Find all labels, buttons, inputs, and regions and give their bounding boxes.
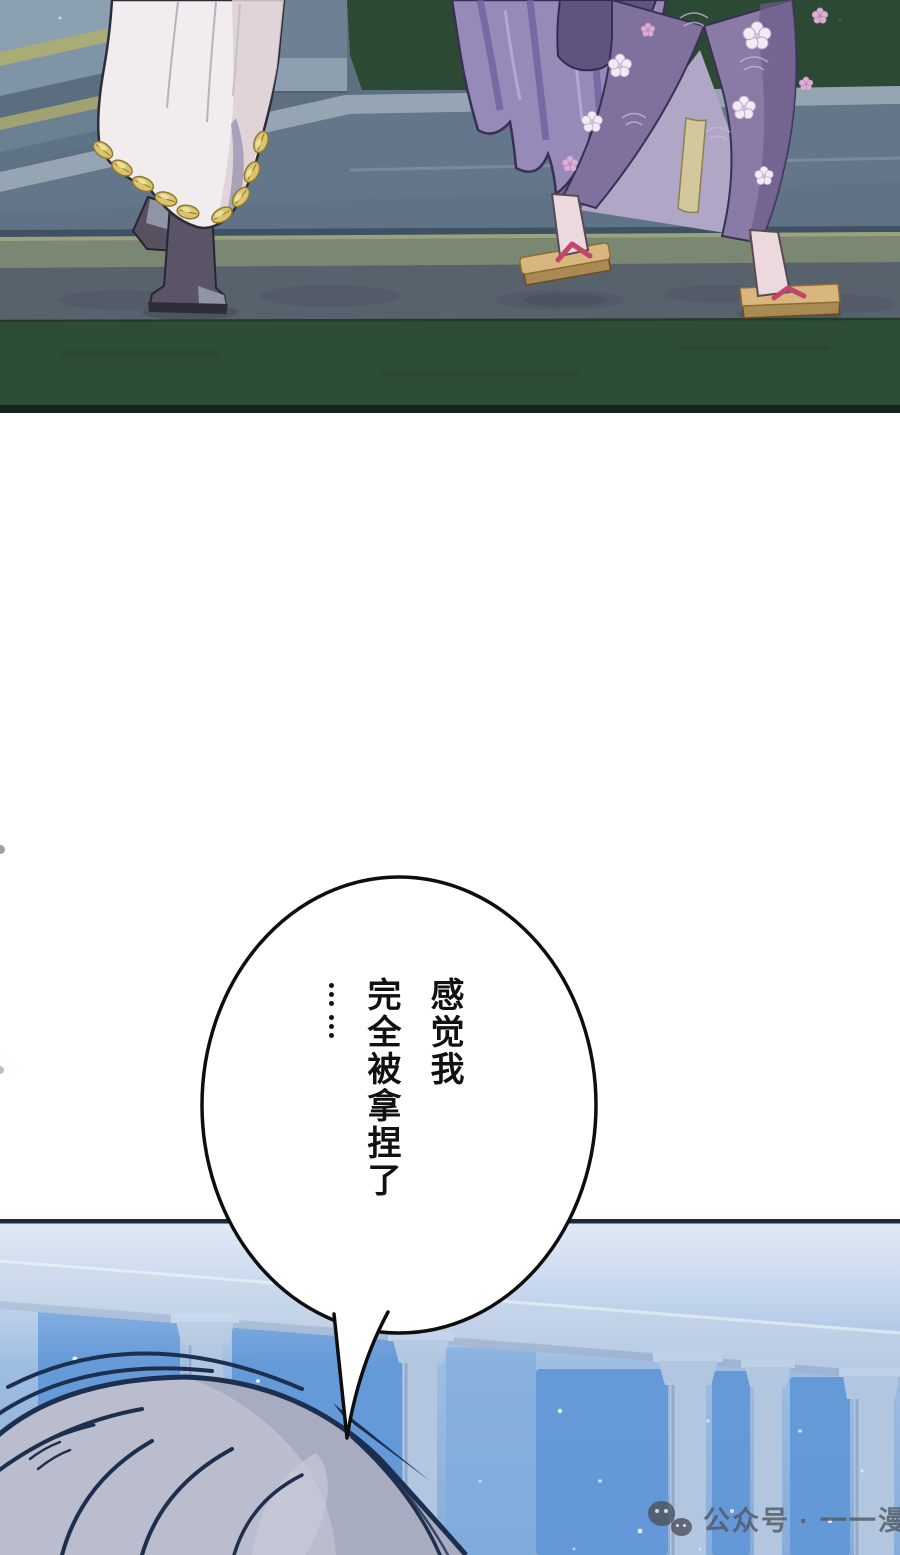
bubble-text-column-2: 完全被拿捏了 [364,977,398,1199]
wechat-icon [648,1501,694,1536]
top-panel-border [0,405,900,413]
manhua-page: 感觉我 完全被拿捏了 …… 公众号 · 一一漫 [0,0,900,1555]
top-panel-garden-scene [0,0,900,413]
grass-bottom [0,319,900,407]
watermark-text: 公众号 · 一一漫 [703,1499,900,1538]
bubble-text-column-1: 感觉我 [427,977,461,1088]
watermark: 公众号 · 一一漫 [648,1499,900,1538]
speech-bubble-tail [334,1312,388,1438]
speech-bubble-layer [0,850,900,1470]
vertical-ellipsis: …… [329,983,334,1038]
